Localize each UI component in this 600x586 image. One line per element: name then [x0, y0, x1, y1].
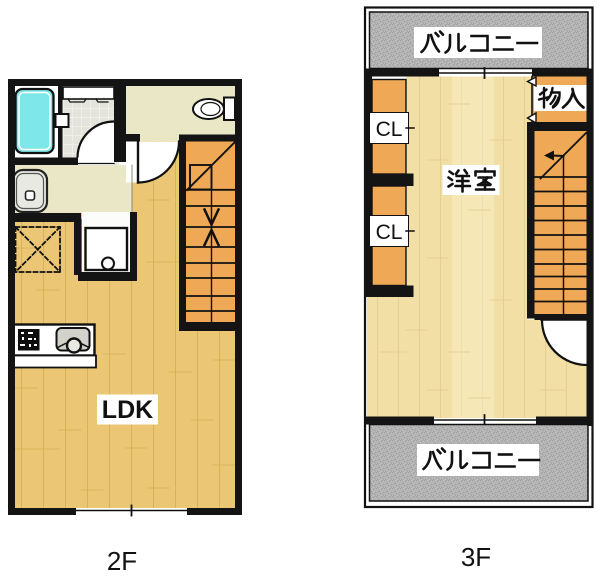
- svg-text:CL: CL: [376, 221, 403, 244]
- svg-text:3F: 3F: [461, 542, 491, 572]
- svg-text:2F: 2F: [107, 546, 137, 576]
- svg-text:CL: CL: [376, 118, 403, 141]
- svg-text:LDK: LDK: [102, 396, 153, 424]
